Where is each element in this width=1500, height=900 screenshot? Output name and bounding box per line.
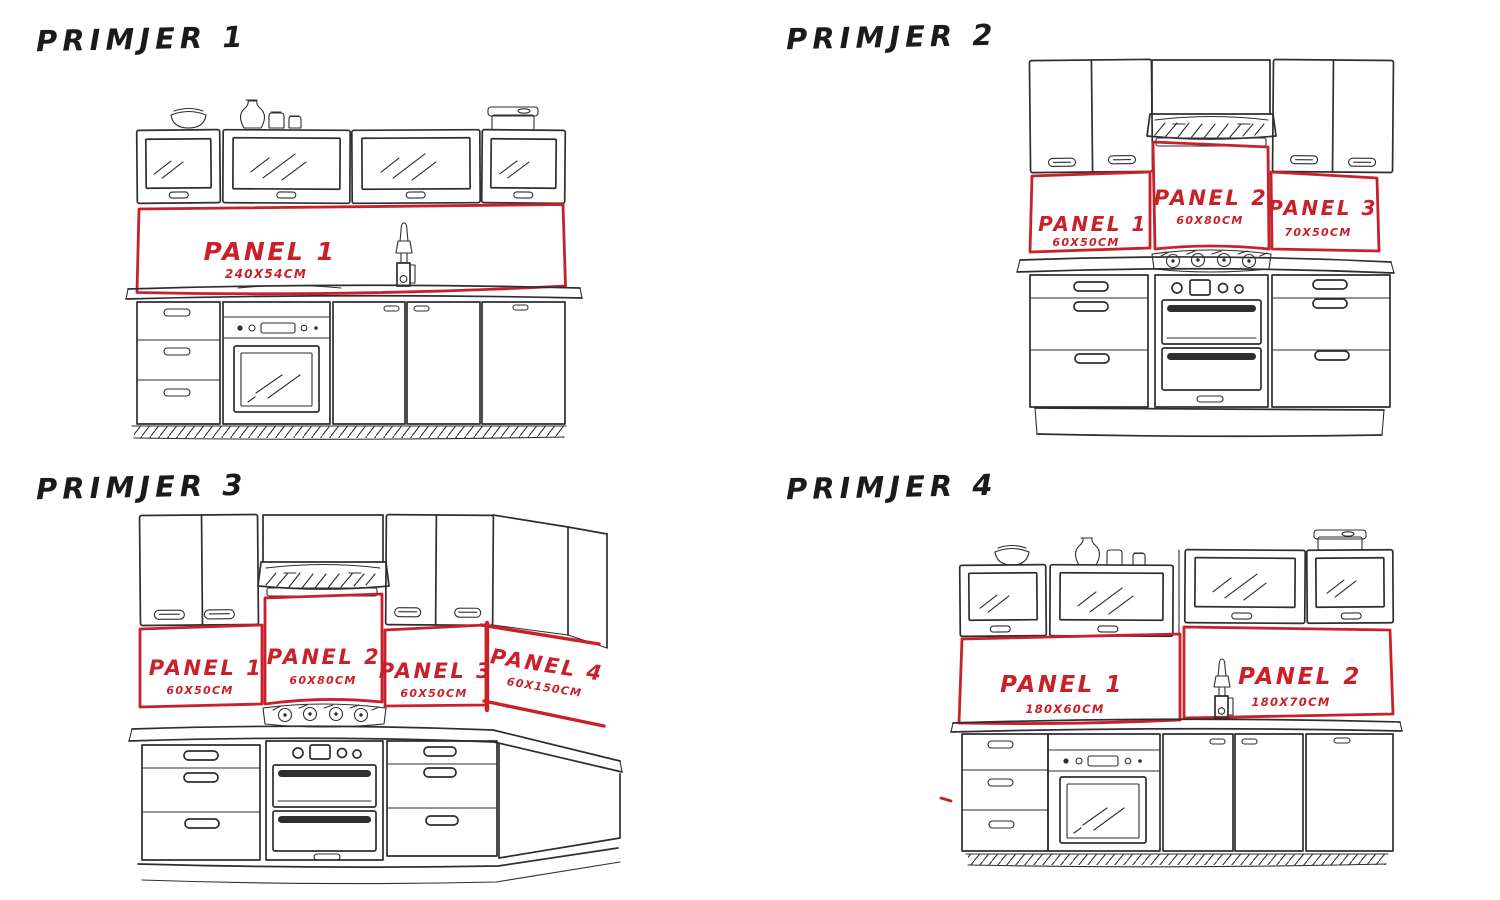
- wall-cabinet: [137, 130, 221, 204]
- wall-cabinet: [1273, 59, 1394, 172]
- panel-2-label: PANEL 2: [1238, 664, 1362, 690]
- drawer-stack: [1272, 275, 1390, 407]
- stray-red-mark: [941, 798, 951, 801]
- countertop: [1017, 257, 1394, 273]
- countertop-items: [171, 100, 538, 130]
- wall-cabinet: [140, 514, 259, 625]
- panel-2-size: 180X70CM: [1251, 695, 1330, 709]
- range-hood: [1147, 60, 1276, 146]
- upper-cabinets: [960, 550, 1394, 637]
- panel-layout-sheet: PRIMJER 1 PRIMJER 2 PRIMJER 3 PRIMJER 4: [0, 0, 1500, 900]
- panel-2-outline: PANEL 2 60X80CM: [1153, 142, 1269, 249]
- panel-1-size: 180X60CM: [1025, 702, 1104, 716]
- panel-4-outline: PANEL 4 60X150CM: [481, 623, 605, 726]
- panel-1-label: PANEL 1: [149, 656, 263, 680]
- double-oven: [1155, 275, 1268, 407]
- example-3-drawing: PANEL 1 60X50CM PANEL 2 60X80CM PANEL 3 …: [118, 498, 628, 898]
- upper-cabinets: [137, 130, 566, 204]
- panel-3-label: PANEL 3: [1268, 196, 1378, 220]
- panel-2-size: 60X80CM: [289, 674, 356, 687]
- panel-4-label: PANEL 4: [489, 644, 606, 686]
- wall-cabinet: [1185, 550, 1306, 624]
- panel-3-outline: PANEL 3 70X50CM: [1268, 172, 1379, 251]
- panel-1-label: PANEL 1: [204, 237, 337, 266]
- floor-hatching: [966, 854, 1388, 867]
- panel-1-outline: PANEL 1 60X50CM: [1030, 172, 1150, 252]
- panel-1-label: PANEL 1: [1038, 212, 1148, 236]
- wall-cabinet: [482, 130, 566, 204]
- gas-hob: [263, 704, 386, 727]
- example-4-title: PRIMJER 4: [786, 468, 998, 506]
- upper-cabinets: [1029, 59, 1393, 172]
- corner-base-run: [499, 744, 620, 858]
- panel-2-outline: PANEL 2 60X80CM: [265, 594, 382, 704]
- wall-cabinet: [386, 515, 494, 626]
- base-doors: [1163, 734, 1393, 851]
- drawer-stack: [1030, 275, 1148, 407]
- wall-cabinet: [1029, 59, 1152, 172]
- faucet: [396, 223, 415, 286]
- panel-1-size: 240X54CM: [225, 267, 307, 281]
- panel-1-outline: PANEL 1 60X50CM: [140, 625, 263, 707]
- faucet: [1214, 659, 1233, 718]
- drawer-stack: [387, 741, 497, 856]
- range-hood: [258, 515, 389, 596]
- drawer-stack: [137, 302, 220, 424]
- drawer-stack: [962, 734, 1048, 851]
- oven: [1048, 734, 1160, 851]
- plinth: [1035, 408, 1384, 436]
- floor-hatching: [132, 426, 566, 439]
- panel-1-outline: PANEL 1 180X60CM: [959, 634, 1180, 724]
- example-2-title: PRIMJER 2: [786, 18, 998, 56]
- wall-cabinet: [960, 565, 1047, 637]
- example-1-title: PRIMJER 1: [36, 20, 248, 58]
- example-4-drawing: PANEL 1 180X60CM PANEL 2 180X70CM: [938, 520, 1428, 890]
- base-cabinets: [138, 741, 620, 884]
- base-doors: [333, 302, 565, 424]
- countertop-items: [995, 530, 1366, 565]
- panel-3-outline: PANEL 3 60X50CM: [379, 625, 493, 706]
- oven: [223, 302, 330, 424]
- example-2-drawing: PANEL 1 60X50CM PANEL 2 60X80CM PANEL 3 …: [1005, 48, 1405, 448]
- drawer-stack: [142, 745, 260, 860]
- wall-cabinet: [352, 130, 480, 204]
- panel-3-size: 60X50CM: [400, 687, 467, 700]
- panel-2-size: 60X80CM: [1176, 214, 1243, 227]
- double-oven: [266, 741, 383, 860]
- floor-lines: [138, 848, 620, 884]
- panel-1-outline: PANEL 1 240X54CM: [137, 205, 566, 294]
- base-cabinets: [1030, 275, 1390, 436]
- example-1-drawing: PANEL 1 240X54CM: [88, 88, 608, 448]
- wall-cabinet: [1050, 565, 1173, 637]
- panel-1-size: 60X50CM: [1052, 236, 1119, 249]
- panel-2-label: PANEL 2: [267, 645, 381, 669]
- panel-3-label: PANEL 3: [379, 659, 493, 683]
- panel-1-size: 60X50CM: [166, 684, 233, 697]
- panel-1-label: PANEL 1: [1000, 672, 1124, 698]
- base-cabinets: [962, 734, 1393, 851]
- base-cabinets: [137, 302, 565, 424]
- panel-3-size: 70X50CM: [1284, 226, 1351, 239]
- wall-cabinet: [223, 130, 350, 204]
- wall-cabinet: [1307, 550, 1394, 624]
- panel-2-label: PANEL 2: [1154, 186, 1268, 210]
